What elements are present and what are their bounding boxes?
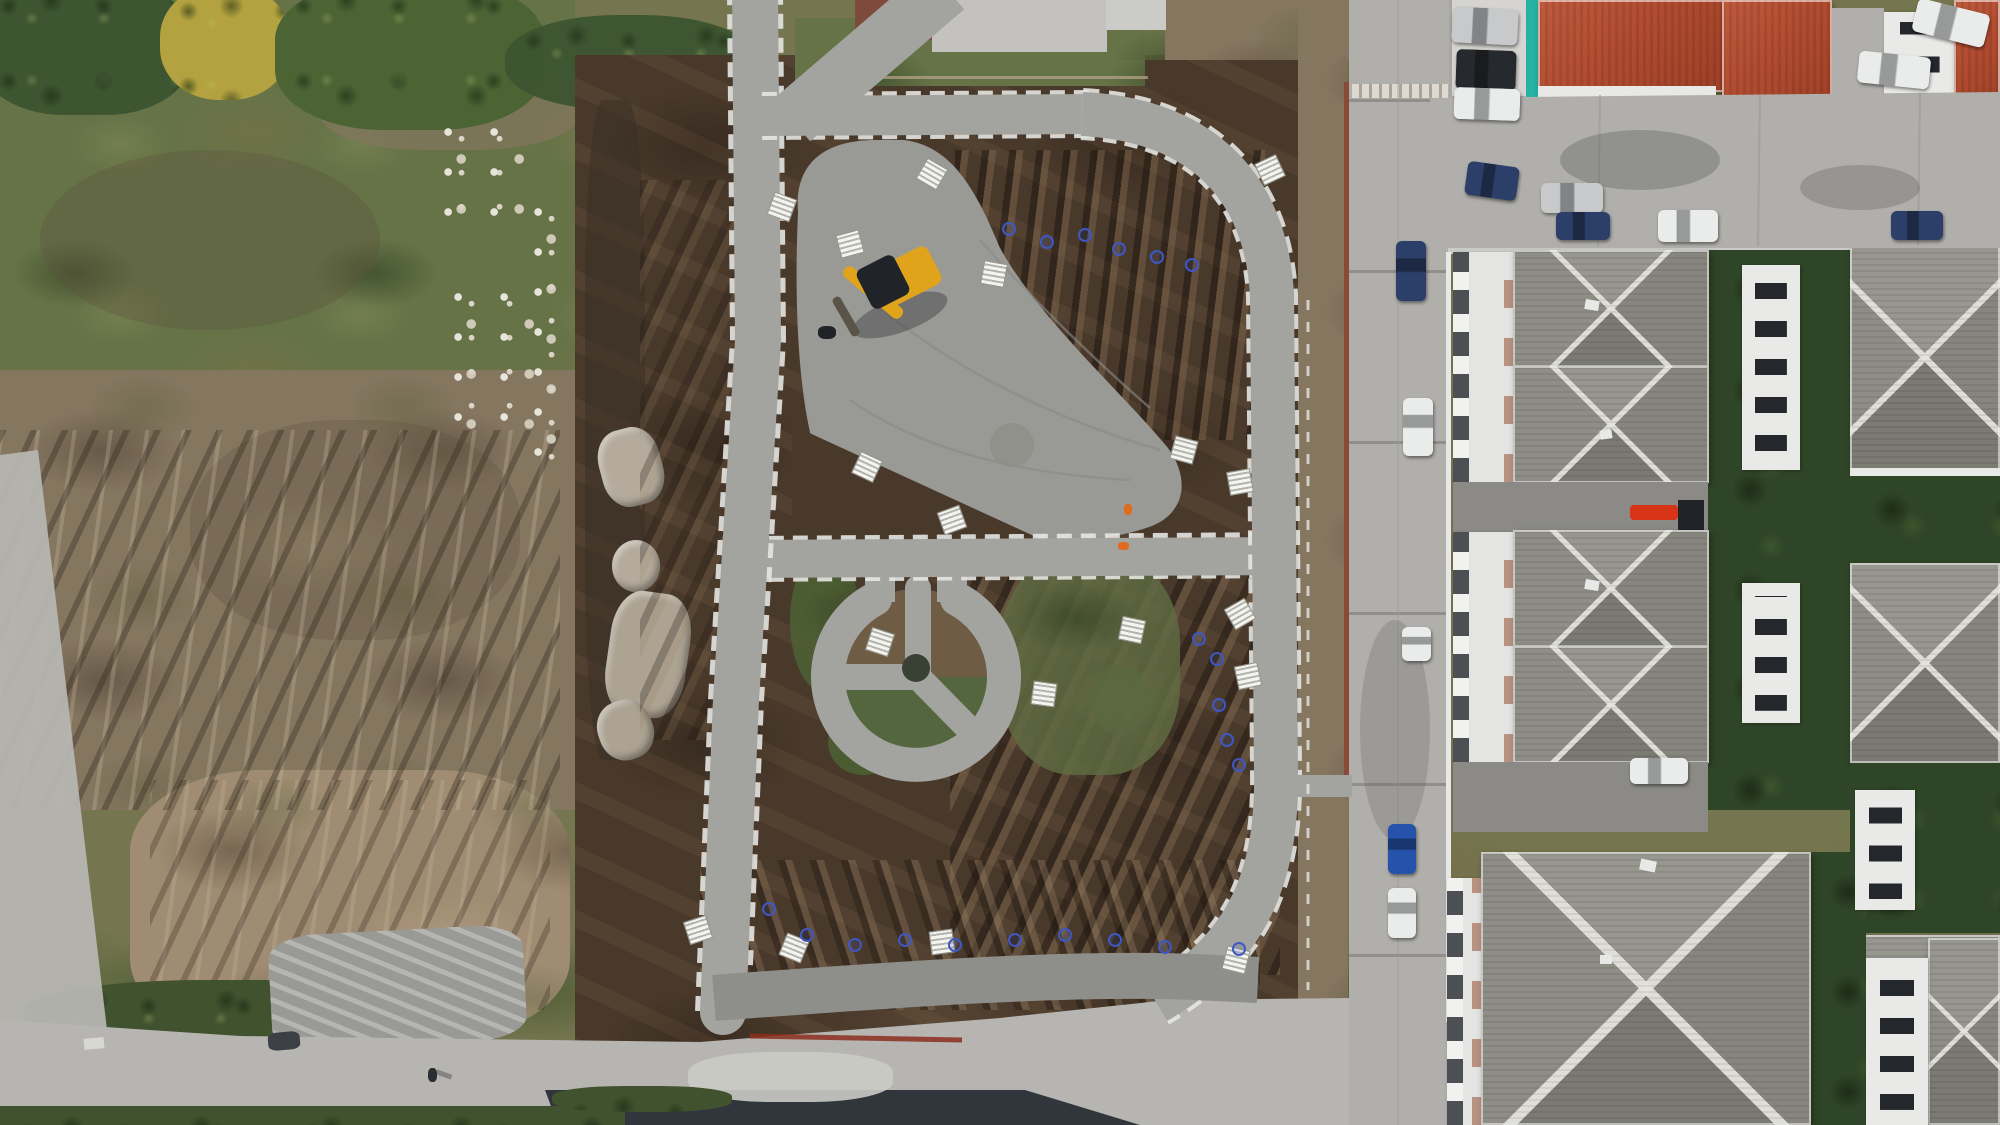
car-navy-street [1556, 212, 1610, 240]
blue-marker-18 [1058, 928, 1072, 942]
blue-marker-3 [1078, 228, 1092, 242]
blue-marker-5 [1150, 250, 1164, 264]
blue-marker-11 [1232, 758, 1246, 772]
traffic-cone-1 [1124, 504, 1132, 515]
car-white-parked-1 [1403, 398, 1433, 456]
blue-marker-10 [1220, 733, 1234, 747]
blue-marker-16 [948, 938, 962, 952]
car-navy-parked [1396, 241, 1426, 301]
car-white-top [1453, 87, 1520, 121]
blue-marker-13 [800, 928, 814, 942]
van-white-street [1658, 210, 1718, 242]
car-white-parked-3 [1388, 888, 1416, 938]
blue-marker-2 [1040, 235, 1054, 249]
car-black-top [1455, 49, 1516, 91]
car-silver-street [1541, 183, 1603, 213]
blue-marker-1 [1002, 222, 1016, 236]
car-blue-parked [1388, 824, 1416, 874]
grass-strip-bottom-a [0, 1106, 625, 1125]
car-navy-street-right [1891, 211, 1943, 240]
road-white-object [84, 1037, 105, 1050]
pallet-14 [1030, 680, 1057, 707]
car-silver-top [1451, 6, 1519, 45]
car-white-parked-2 [1402, 627, 1431, 661]
blue-marker-7 [1192, 632, 1206, 646]
pallet-4 [980, 260, 1008, 288]
street-stain-b [1800, 165, 1920, 210]
path-middle [740, 556, 1292, 559]
traffic-cone-2 [1118, 542, 1129, 550]
blue-marker-9 [1212, 698, 1226, 712]
excavator-bucket [818, 326, 836, 339]
pallet-13 [1234, 662, 1262, 690]
path-bottom-gravel [714, 976, 1258, 998]
left-road [0, 450, 108, 1048]
blue-marker-8 [1210, 652, 1224, 666]
pedestrian [428, 1068, 437, 1082]
blue-marker-17 [1008, 933, 1022, 947]
aerial-construction-site-photo [0, 0, 2000, 1125]
blue-marker-12 [762, 902, 776, 916]
blue-marker-20 [1158, 940, 1172, 954]
street-stain-a [1560, 130, 1720, 190]
blue-marker-14 [848, 938, 862, 952]
road-dark-object [267, 1031, 300, 1052]
blue-marker-15 [898, 933, 912, 947]
grass-strip-bottom-b [552, 1086, 732, 1112]
plaza-gravel-mound [990, 423, 1034, 467]
car-white-driveway [1630, 758, 1688, 784]
blue-marker-4 [1112, 242, 1126, 256]
blue-marker-6 [1185, 258, 1199, 272]
pallet-7 [1226, 468, 1254, 496]
pallet-10 [1118, 616, 1146, 644]
blue-marker-21 [1232, 942, 1246, 956]
blue-marker-19 [1108, 933, 1122, 947]
tree-pit [902, 654, 930, 682]
car-navy-angled [1464, 161, 1520, 202]
